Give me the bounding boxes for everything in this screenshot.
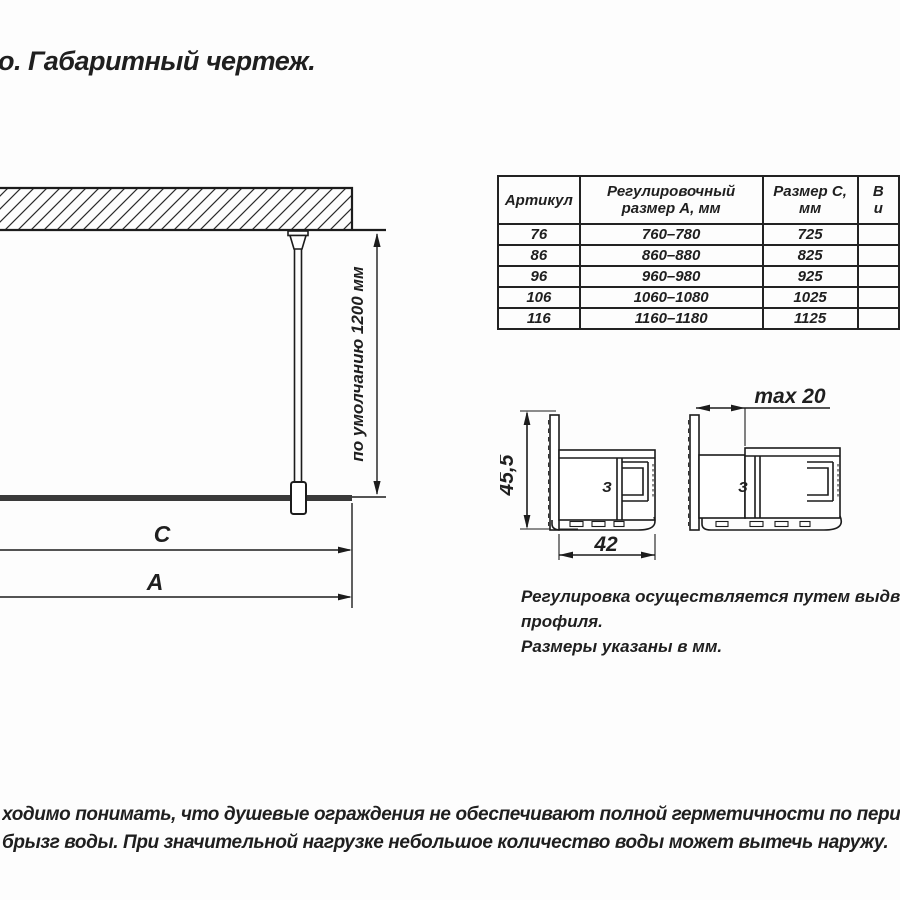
cell-size-a: 1160–1180 [580,308,763,329]
note-line: Размеры указаны в мм. [521,634,900,659]
cell-size-c: 925 [763,266,858,287]
dimension-42-label: 42 [593,533,618,556]
arrow-right-icon [641,552,655,559]
wall-profile-section-extended: З [689,405,842,530]
col-header-partial-line1: В [861,183,896,200]
table-row: 86 860–880 825 [498,245,899,266]
profile-cross-sections: З [500,378,890,578]
col-header-partial: В и [858,176,899,224]
cell-article: 76 [498,224,580,245]
arrow-down-icon [524,515,531,529]
dimension-c: C [0,521,352,553]
table-row: 96 960–980 925 [498,266,899,287]
arrow-left-icon [559,552,573,559]
col-header-size-a: Регулировочный размер А, мм [580,176,763,224]
cell-size-a: 760–780 [580,224,763,245]
warning-text: ходимо понимать, что душевые ограждения … [2,801,900,857]
cell-article: 86 [498,245,580,266]
arrow-down-icon [373,481,380,495]
cell-size-c: 725 [763,224,858,245]
cell-partial [858,266,899,287]
cell-size-a: 960–980 [580,266,763,287]
dimension-default-height-label: по умолчанию 1200 мм [348,266,367,462]
dimension-c-label: C [154,521,171,547]
dimension-a: A [0,569,352,600]
col-header-partial-line2: и [861,200,896,217]
adjustment-notes: Регулировка осуществляется путем выдвиже… [521,584,900,659]
cell-partial [858,287,899,308]
dimension-a-label: A [146,569,164,595]
support-bar-top-clamp [290,236,306,250]
arrow-right-icon [731,405,745,412]
support-bar-rod [295,249,302,484]
support-bar [288,231,308,484]
cell-size-c: 1125 [763,308,858,329]
cell-partial [858,308,899,329]
col-header-size-c: Размер С, мм [763,176,858,224]
dimensional-drawing-page: о. Габаритный чертеж. по ум [0,0,900,900]
screw-boss-glyph: З [602,479,612,496]
cell-partial [858,245,899,266]
wall-hatch-band [0,188,386,230]
arrow-right-icon [338,594,352,601]
arrow-right-icon [338,547,352,554]
table-row: 76 760–780 725 [498,224,899,245]
cell-size-c: 1025 [763,287,858,308]
cell-article: 106 [498,287,580,308]
dimension-455-label: 45,5 [500,454,518,496]
arrow-up-icon [373,233,380,247]
warning-line: брызг воды. При значительной нагрузке не… [2,829,900,857]
wall-flange [550,415,559,530]
table-row: 116 1160–1180 1125 [498,308,899,329]
table-header-row: Артикул Регулировочный размер А, мм Разм… [498,176,899,224]
arrow-up-icon [524,411,531,425]
cell-size-a: 1060–1080 [580,287,763,308]
table-row: 106 1060–1080 1025 [498,287,899,308]
note-line: профиля. [521,609,900,634]
screw-boss-glyph: З [738,479,748,496]
dimension-default-height: по умолчанию 1200 мм [348,233,381,495]
warning-line: ходимо понимать, что душевые ограждения … [2,801,900,829]
page-title: о. Габаритный чертеж. [0,46,315,77]
wall-flange [690,415,699,530]
col-header-article: Артикул [498,176,580,224]
spec-table: Артикул Регулировочный размер А, мм Разм… [497,175,900,330]
cell-size-a: 860–880 [580,245,763,266]
dimension-max20-label: max 20 [754,385,826,408]
wall-profile-section-closed: З [520,411,655,560]
cell-partial [858,224,899,245]
support-bar-glass-clamp [291,482,306,514]
cell-article: 96 [498,266,580,287]
cell-size-c: 825 [763,245,858,266]
shower-screen-elevation-drawing: по умолчанию 1200 мм C A [0,170,400,630]
note-line: Регулировка осуществляется путем выдвиже… [521,584,900,609]
arrow-left-icon [696,405,710,412]
cell-article: 116 [498,308,580,329]
